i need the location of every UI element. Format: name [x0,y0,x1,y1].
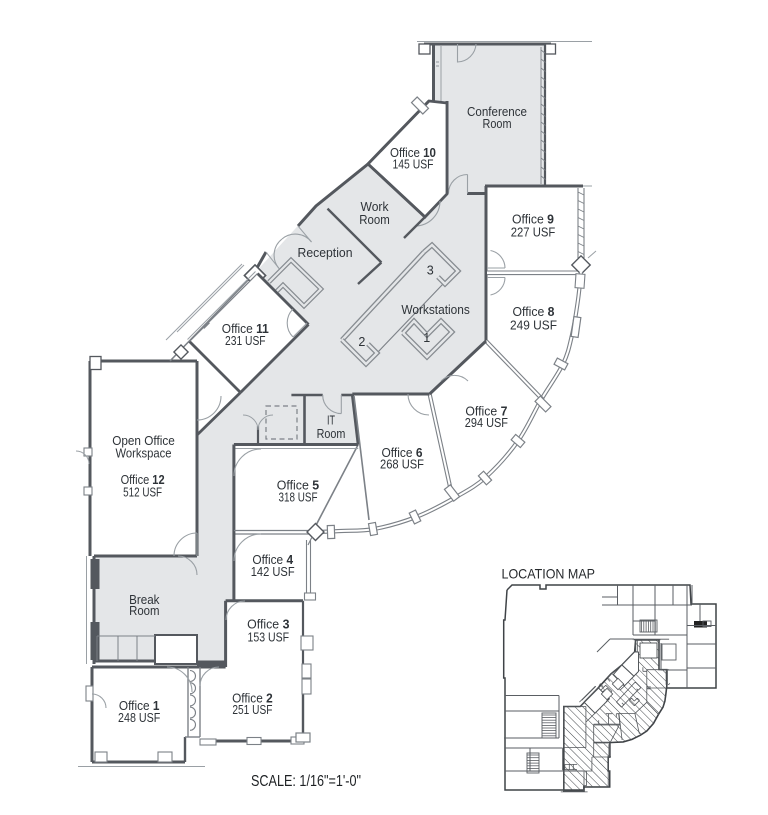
svg-text:248 USF: 248 USF [118,711,161,725]
svg-text:512 USF: 512 USF [123,486,162,500]
svg-text:2: 2 [358,335,365,349]
svg-text:227 USF: 227 USF [511,225,556,239]
svg-text:IT: IT [327,413,335,427]
svg-text:318 USF: 318 USF [279,490,318,504]
svg-text:Room: Room [129,604,159,618]
svg-text:142 USF: 142 USF [251,565,295,579]
svg-text:Room: Room [359,213,390,227]
svg-text:Workspace: Workspace [116,446,172,460]
svg-text:Work: Work [361,200,390,214]
svg-text:294 USF: 294 USF [465,416,508,430]
svg-text:Workstations: Workstations [401,303,470,317]
svg-text:251 USF: 251 USF [232,703,272,717]
svg-text:3: 3 [427,264,434,278]
svg-text:231 USF: 231 USF [225,334,266,348]
svg-text:Office 8: Office 8 [513,305,555,319]
svg-text:Reception: Reception [298,246,353,260]
svg-text:Office 9: Office 9 [512,213,554,227]
svg-text:249 USF: 249 USF [510,318,557,332]
svg-text:145 USF: 145 USF [393,158,434,172]
svg-text:153 USF: 153 USF [248,630,290,644]
svg-text:Office 3: Office 3 [247,618,289,632]
svg-text:LOCATION MAP: LOCATION MAP [502,567,596,582]
svg-text:268 USF: 268 USF [380,458,424,472]
svg-text:SCALE: 1/16"=1'-0": SCALE: 1/16"=1'-0" [251,773,361,790]
svg-text:1: 1 [423,331,430,345]
svg-text:Room: Room [483,117,512,131]
svg-text:Room: Room [317,427,346,441]
